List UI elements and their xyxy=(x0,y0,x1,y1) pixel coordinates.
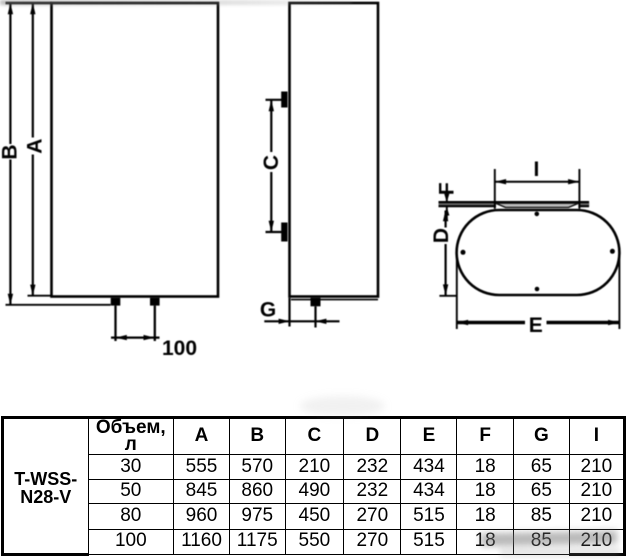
svg-text:I: I xyxy=(533,158,539,181)
svg-text:A: A xyxy=(24,139,47,154)
svg-text:F: F xyxy=(436,182,459,195)
svg-text:E: E xyxy=(529,314,543,337)
svg-text:D: D xyxy=(430,228,453,243)
svg-text:G: G xyxy=(260,299,276,322)
svg-text:100: 100 xyxy=(162,337,197,360)
svg-text:C: C xyxy=(260,155,283,170)
svg-text:B: B xyxy=(0,145,22,160)
